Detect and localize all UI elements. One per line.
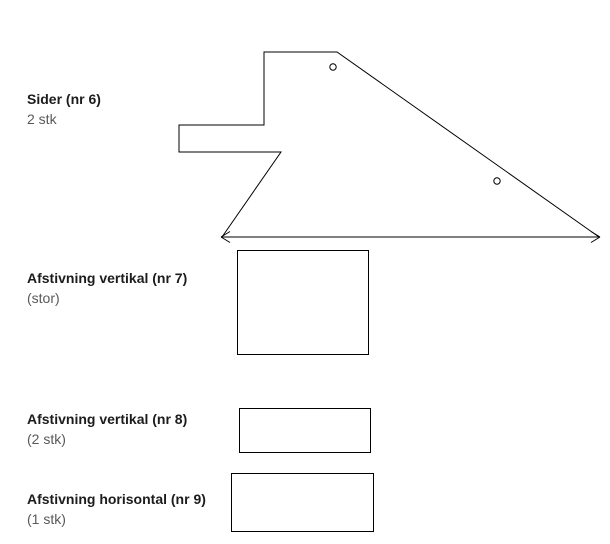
screw-hole-icon: [494, 178, 500, 184]
part-title: Afstivning vertikal (nr 7): [27, 268, 187, 288]
arrowhead-right-icon: [591, 232, 600, 238]
part-quantity: (stor): [27, 288, 187, 308]
label-afstivning-vertikal-nr7: Afstivning vertikal (nr 7) (stor): [27, 268, 187, 308]
part-quantity: (2 stk): [27, 429, 187, 449]
part-title: Afstivning vertikal (nr 8): [27, 409, 187, 429]
label-sider-nr6: Sider (nr 6) 2 stk: [27, 89, 101, 129]
part-title: Afstivning horisontal (nr 9): [27, 489, 206, 509]
arrowhead-left-icon: [221, 237, 230, 243]
label-afstivning-vertikal-nr8: Afstivning vertikal (nr 8) (2 stk): [27, 409, 187, 449]
part-quantity: (1 stk): [27, 509, 206, 529]
part-title: Sider (nr 6): [27, 89, 101, 109]
arrowhead-right-icon: [591, 237, 600, 243]
side-panel-outline: [179, 52, 599, 237]
screw-hole-icon: [330, 64, 336, 70]
label-afstivning-horisontal-nr9: Afstivning horisontal (nr 9) (1 stk): [27, 489, 206, 529]
brace-vertical-small-rect: [240, 409, 371, 453]
part-quantity: 2 stk: [27, 109, 101, 129]
brace-vertical-large-rect: [238, 251, 369, 355]
brace-horizontal-rect: [232, 474, 374, 532]
cutting-parts-diagram: Sider (nr 6) 2 stk Afstivning vertikal (…: [0, 0, 610, 544]
